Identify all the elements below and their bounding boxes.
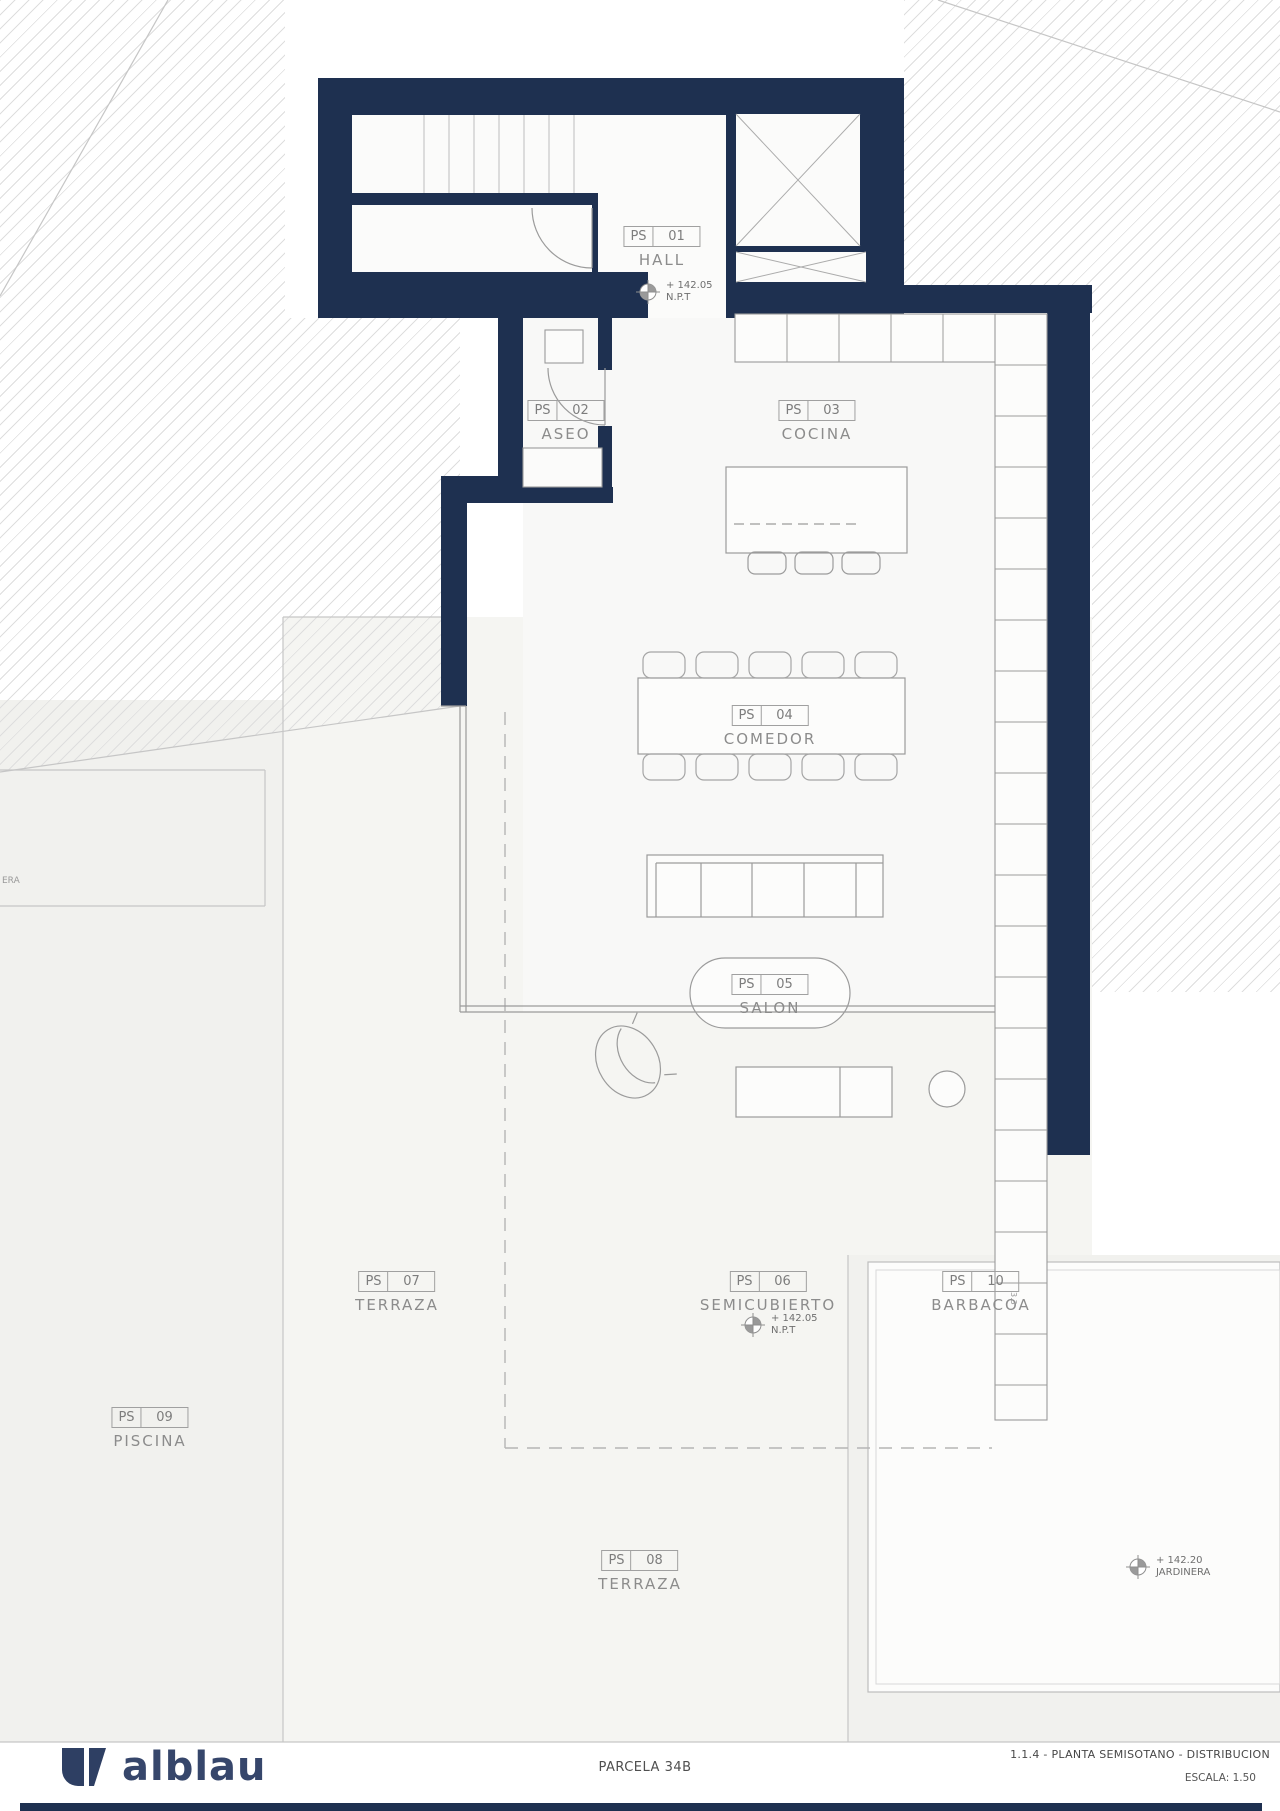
room-label-terraza-08: PS08 TERRAZA xyxy=(598,1549,682,1593)
level-value: + 142.20 xyxy=(1156,1555,1210,1567)
wall-left-lower xyxy=(441,490,467,706)
room-code-box: PS04 xyxy=(731,705,808,726)
logo-mark-icon xyxy=(60,1746,110,1788)
chair xyxy=(855,754,897,780)
sofa xyxy=(647,855,883,917)
room-label-hall: PS01 HALL xyxy=(623,225,700,269)
aseo-sink-counter xyxy=(523,448,602,487)
room-code-box: PS05 xyxy=(731,974,808,995)
room-label-cocina: PS03 COCINA xyxy=(778,399,855,443)
chair xyxy=(802,652,844,678)
wall-aseo-right-a xyxy=(598,318,612,370)
footer-bar xyxy=(20,1803,1262,1811)
planter-box xyxy=(868,1262,1280,1692)
room-code-box: PS09 xyxy=(111,1407,188,1428)
floor-plan-linework xyxy=(0,0,1280,1811)
level-value: + 142.05 xyxy=(771,1313,818,1325)
level-label: N.P.T xyxy=(666,292,713,304)
room-label-salon: PS05 SALON xyxy=(731,973,808,1017)
closet-room xyxy=(352,205,592,272)
room-code-box: PS01 xyxy=(623,226,700,247)
coffee-table xyxy=(736,1067,892,1117)
room-code-box: PS03 xyxy=(778,400,855,421)
level-marker-hall: + 142.05 N.P.T xyxy=(635,279,713,305)
aseo-shelf xyxy=(545,330,583,363)
room-code-box: PS07 xyxy=(358,1271,435,1292)
room-code-box: PS06 xyxy=(729,1271,806,1292)
chair xyxy=(643,754,685,780)
chair xyxy=(643,652,685,678)
chair xyxy=(855,652,897,678)
stool xyxy=(748,552,786,574)
chair xyxy=(696,754,738,780)
level-marker-icon xyxy=(1125,1554,1151,1580)
parcel-label: PARCELA 34B xyxy=(505,1760,785,1775)
sheet-title: 1.1.4 - PLANTA SEMISOTANO - DISTRIBUCION xyxy=(1010,1748,1270,1761)
room-code-box: PS08 xyxy=(601,1550,678,1571)
logo: alblau xyxy=(60,1746,267,1788)
side-table xyxy=(929,1071,965,1107)
chair xyxy=(749,754,791,780)
chair xyxy=(696,652,738,678)
wall-right xyxy=(1047,285,1090,1155)
drawing-sheet: PS01 HALL PS02 ASEO PS03 COCINA PS04 COM… xyxy=(0,0,1280,1811)
wall-left-upper xyxy=(498,318,523,490)
room-label-aseo: PS02 ASEO xyxy=(527,399,604,443)
stair-well xyxy=(352,115,598,193)
room-label-terraza-07: PS07 TERRAZA xyxy=(355,1270,439,1314)
stool xyxy=(842,552,880,574)
room-label-semicubierto: PS06 SEMICUBIERTO xyxy=(700,1270,836,1314)
stool xyxy=(795,552,833,574)
sheet-scale: ESCALA: 1.50 xyxy=(1010,1772,1270,1784)
wall-counter-strip xyxy=(995,314,1047,1420)
kitchen-counter-top xyxy=(735,314,997,362)
room-label-comedor: PS04 COMEDOR xyxy=(724,704,816,748)
wall-aseo-bottom xyxy=(465,487,613,503)
strip-tile-lines xyxy=(995,365,1047,1385)
sheet-title-block: 1.1.4 - PLANTA SEMISOTANO - DISTRIBUCION… xyxy=(1010,1748,1270,1784)
room-code-box: PS02 xyxy=(527,400,604,421)
armchair xyxy=(582,1011,677,1110)
level-label: N.P.T xyxy=(771,1325,818,1337)
level-marker-icon xyxy=(740,1312,766,1338)
dimension-note: 3.3 xyxy=(1009,1292,1018,1305)
kitchen-island xyxy=(726,467,907,574)
level-marker-semicubierto: + 142.05 N.P.T xyxy=(740,1312,818,1338)
jardinera-clipped-label: ERA xyxy=(2,876,20,886)
level-marker-jardinera: + 142.20 JARDINERA xyxy=(1125,1554,1210,1580)
room-label-piscina: PS09 PISCINA xyxy=(111,1406,188,1450)
chair xyxy=(802,754,844,780)
level-value: + 142.05 xyxy=(666,280,713,292)
logo-text: alblau xyxy=(122,1747,267,1787)
chair xyxy=(749,652,791,678)
level-marker-icon xyxy=(635,279,661,305)
level-label: JARDINERA xyxy=(1156,1567,1210,1579)
room-code-box: PS10 xyxy=(942,1271,1019,1292)
